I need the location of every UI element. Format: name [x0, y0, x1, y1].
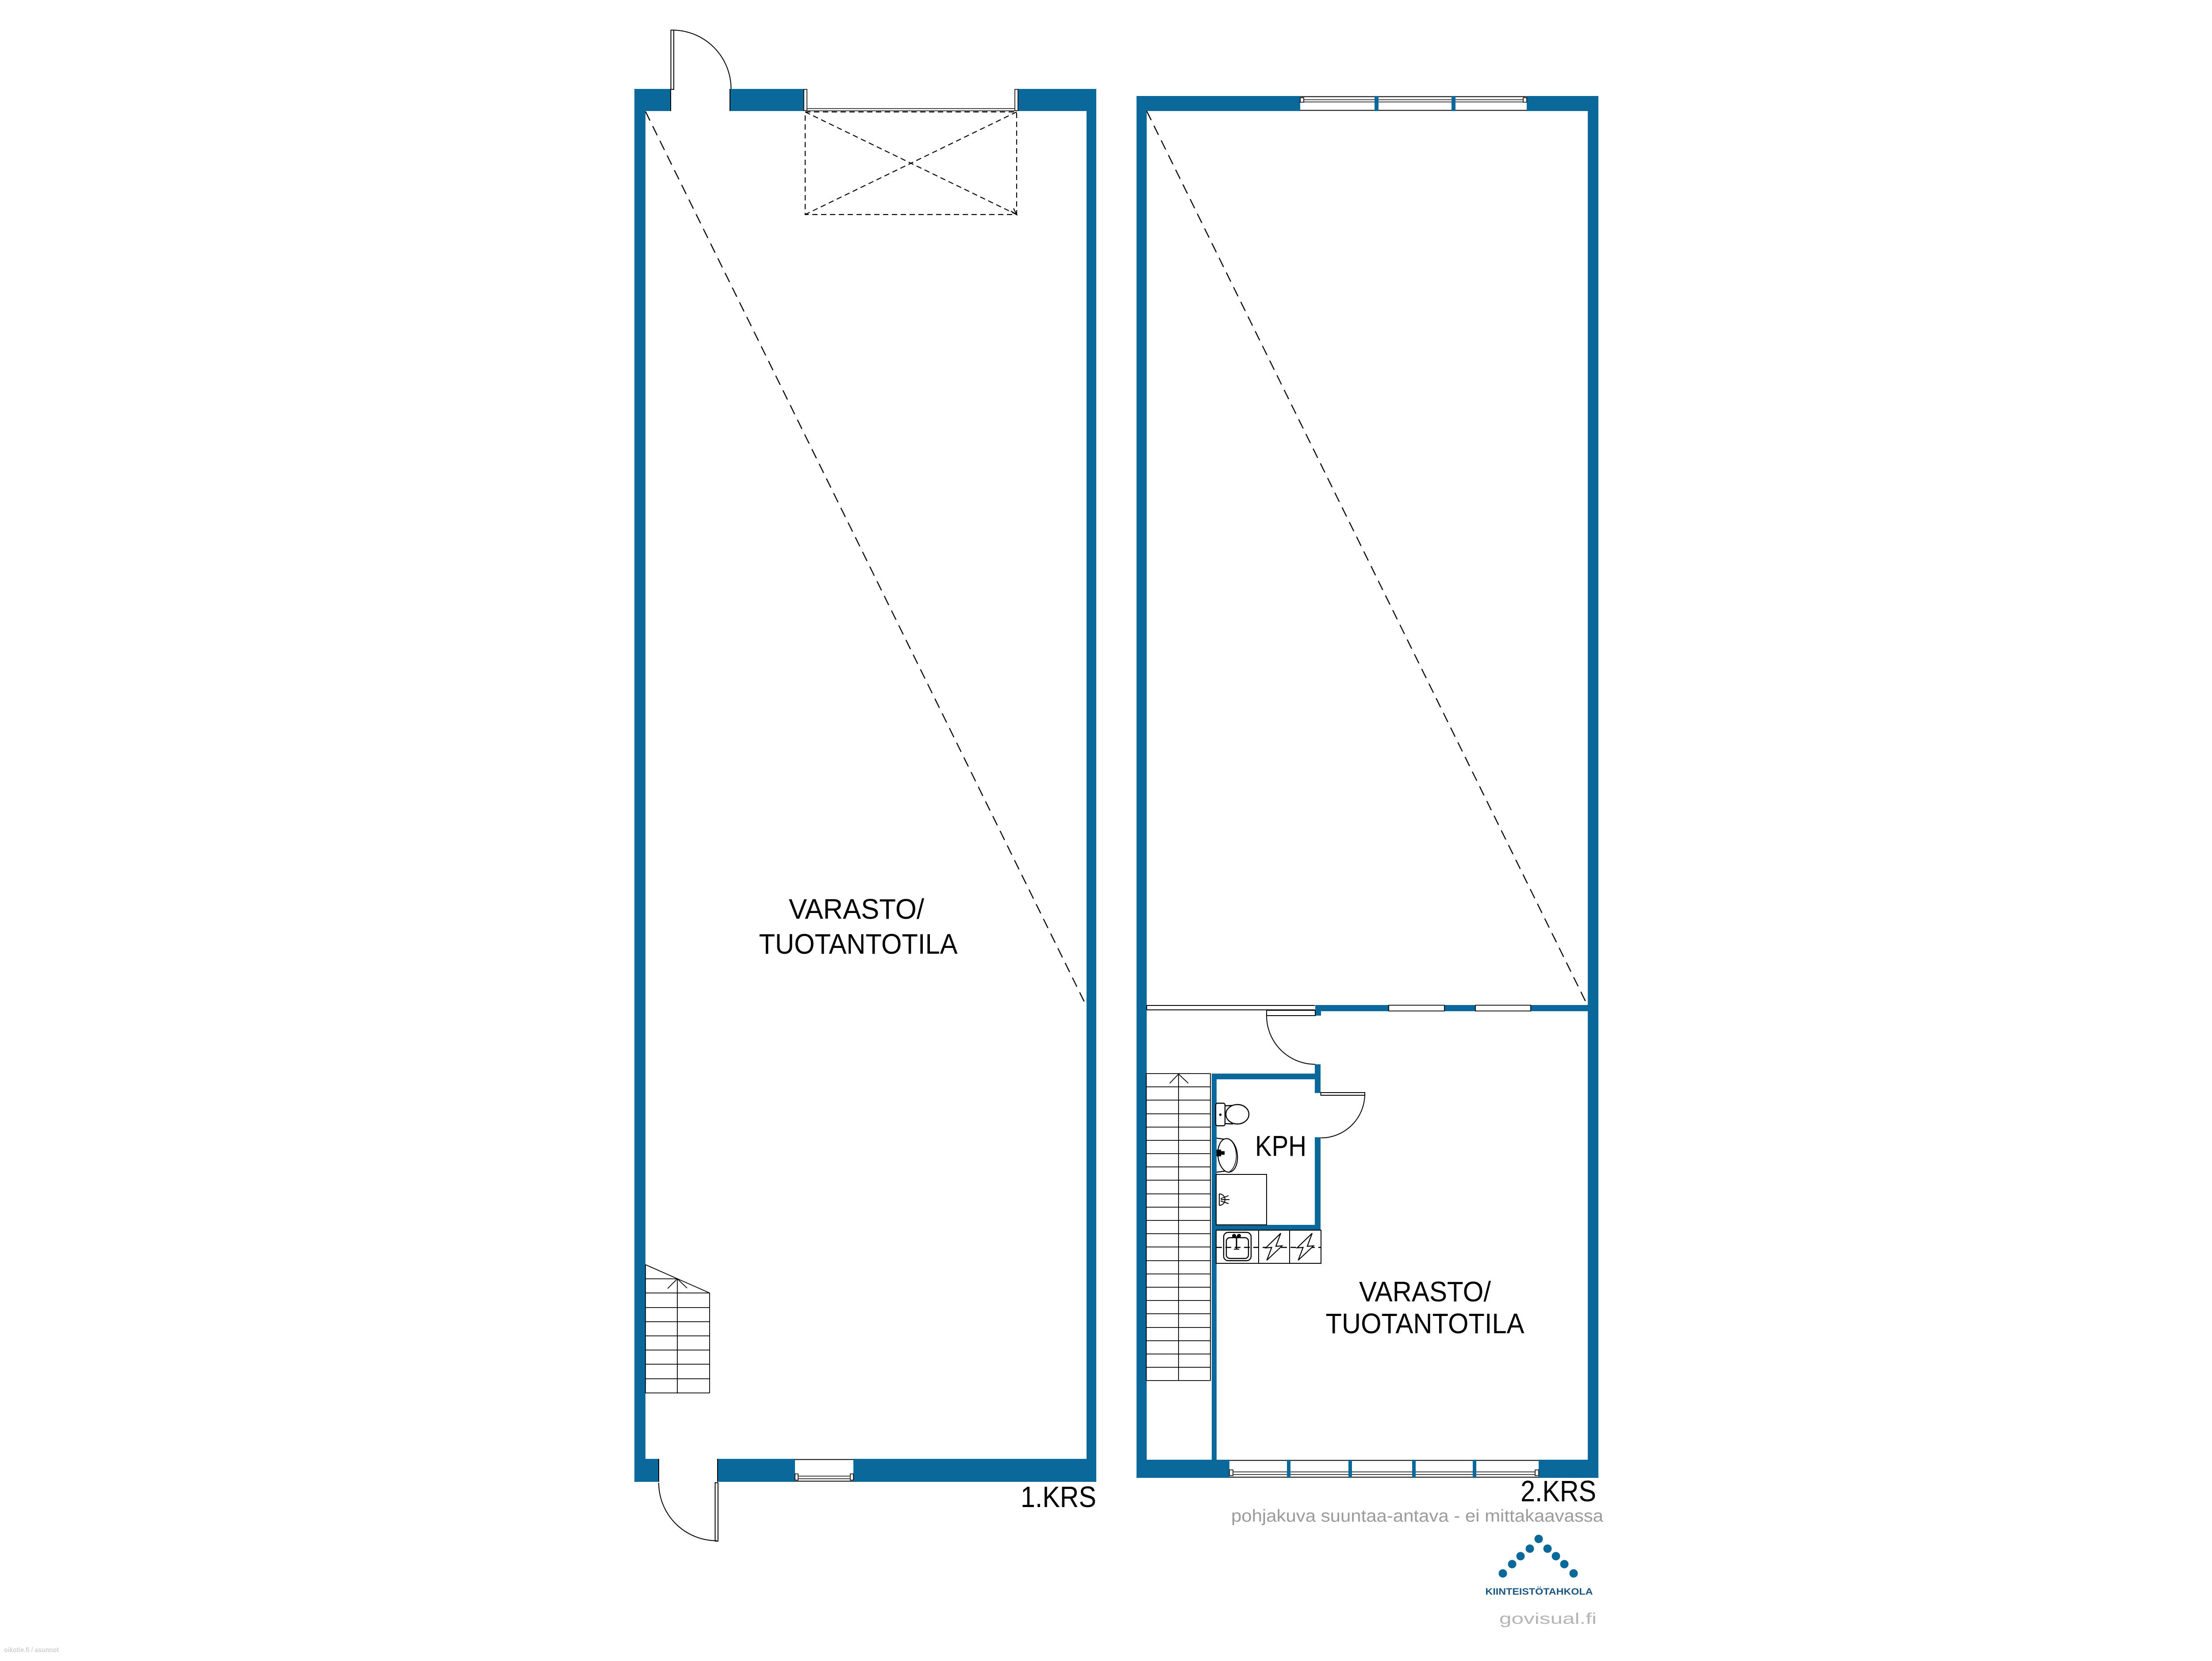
svg-text:pohjakuva suuntaa-antava - ei: pohjakuva suuntaa-antava - ei mittakaava… — [1231, 1507, 1603, 1526]
svg-text:VARASTO/: VARASTO/ — [789, 893, 924, 925]
svg-text:KPH: KPH — [1255, 1130, 1306, 1162]
svg-text:govisual.fi: govisual.fi — [1499, 1610, 1597, 1627]
svg-text:VARASTO/: VARASTO/ — [1359, 1276, 1491, 1308]
svg-text:TUOTANTOTILA: TUOTANTOTILA — [759, 928, 958, 960]
svg-text:2.KRS: 2.KRS — [1521, 1475, 1596, 1508]
svg-text:TUOTANTOTILA: TUOTANTOTILA — [1326, 1308, 1525, 1339]
svg-text:oikotie.fi / asunnot: oikotie.fi / asunnot — [4, 1646, 59, 1654]
svg-text:KIINTEISTÖTAHKOLA: KIINTEISTÖTAHKOLA — [1486, 1586, 1593, 1597]
svg-text:1.KRS: 1.KRS — [1021, 1481, 1096, 1514]
